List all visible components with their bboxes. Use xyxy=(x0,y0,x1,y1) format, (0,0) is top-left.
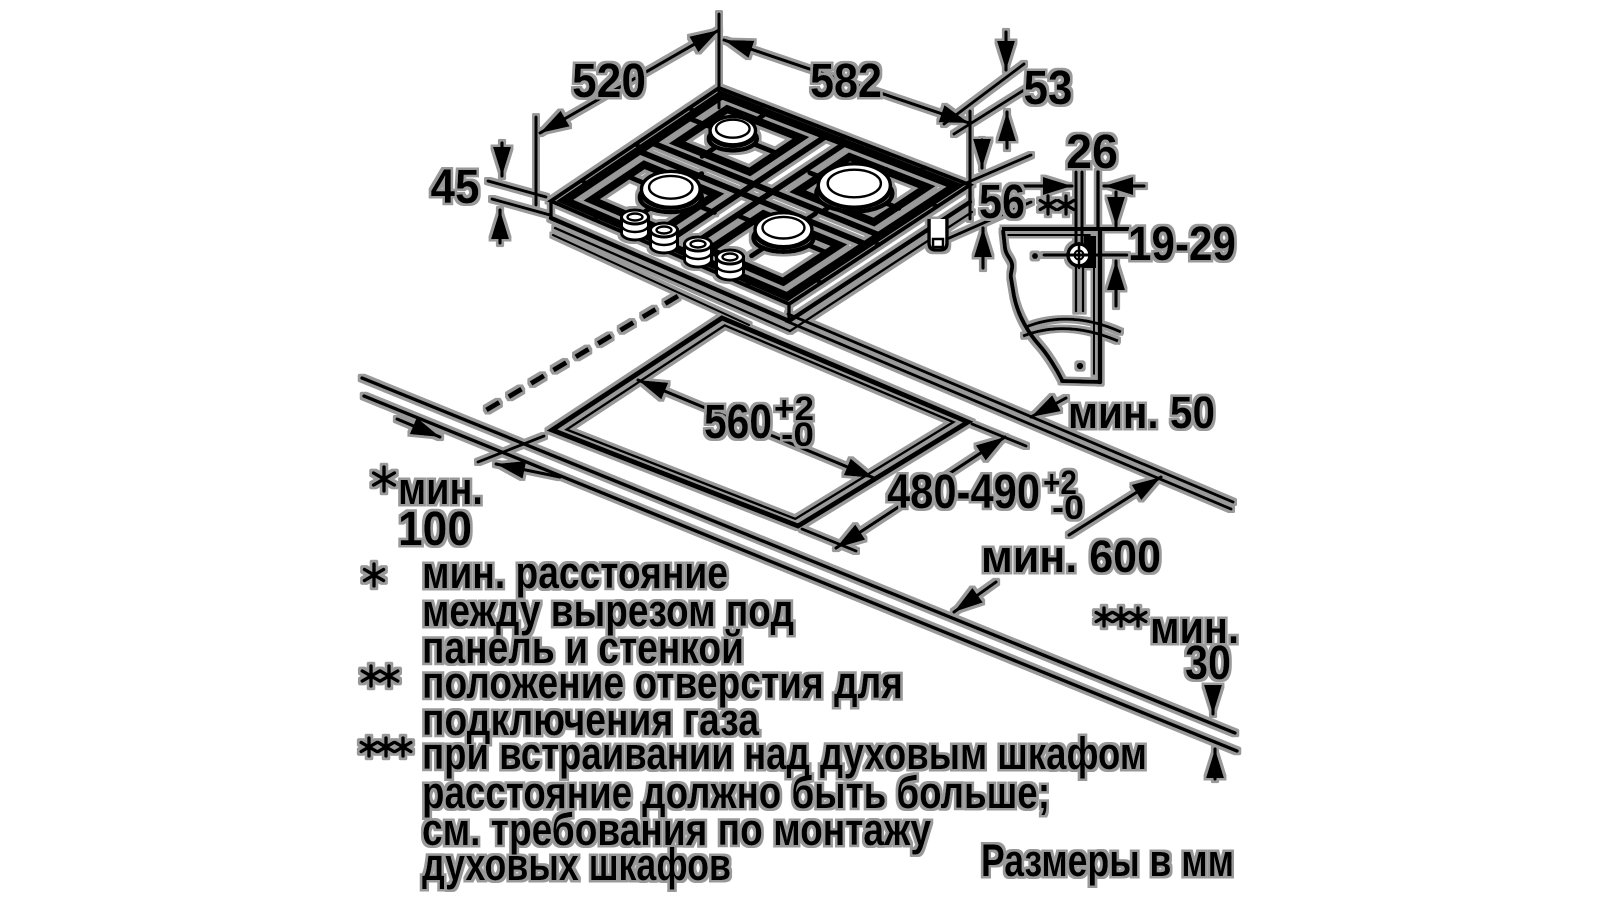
svg-text:30: 30 xyxy=(1185,637,1231,690)
svg-text:19-29: 19-29 xyxy=(1128,218,1236,271)
svg-text:мин. 50: мин. 50 xyxy=(1068,387,1215,438)
svg-text:480-490: 480-490 xyxy=(887,466,1040,519)
svg-text:582: 582 xyxy=(810,55,882,108)
svg-text:520: 520 xyxy=(572,55,646,108)
svg-text:-0: -0 xyxy=(1052,489,1084,527)
svg-text:26: 26 xyxy=(1066,126,1118,179)
svg-text:-0: -0 xyxy=(781,416,814,454)
svg-text:45: 45 xyxy=(431,161,480,214)
svg-text:560: 560 xyxy=(704,396,772,449)
svg-text:духовых шкафов: духовых шкафов xyxy=(422,839,731,890)
svg-text:53: 53 xyxy=(1024,62,1073,115)
svg-text:56: 56 xyxy=(979,176,1025,229)
svg-text:Размеры в мм: Размеры в мм xyxy=(981,835,1234,886)
svg-text:мин. 600: мин. 600 xyxy=(981,531,1161,582)
